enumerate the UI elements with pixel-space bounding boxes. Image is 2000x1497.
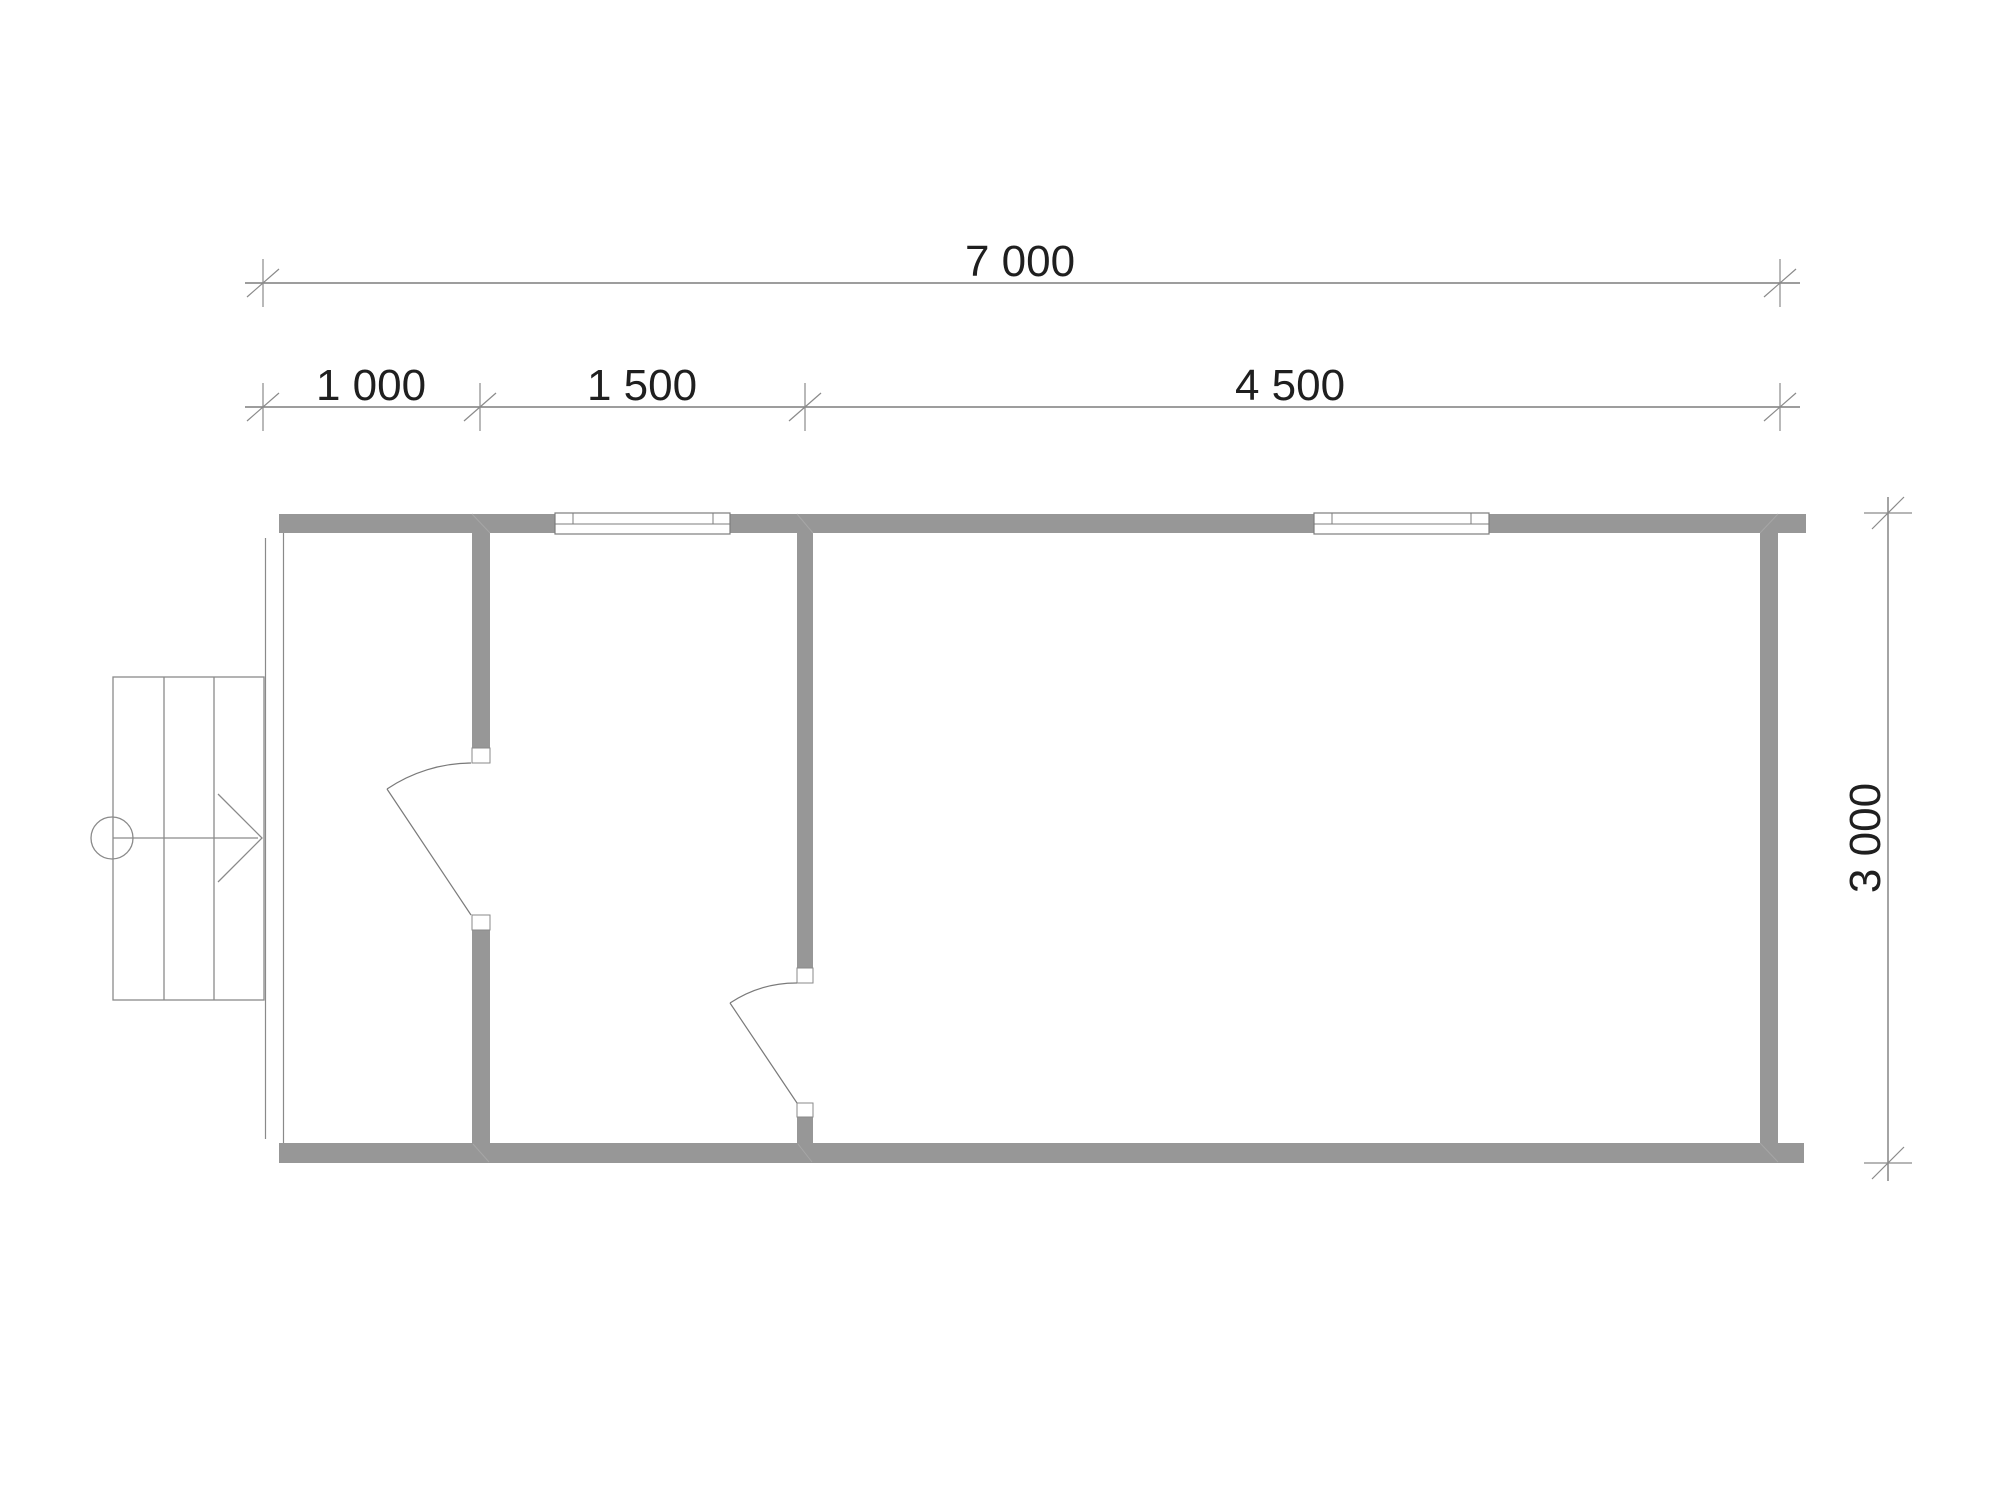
door-jamb [472,748,490,763]
dimension-total-width: 7 000 [245,237,1800,307]
door-leaf [387,789,471,915]
dimension-label-segment-2: 1 500 [587,361,697,410]
floor-plan-canvas: 7 000 1 000 1 500 4 500 [0,0,2000,1497]
door-jamb [472,915,490,930]
door-jamb [797,968,813,983]
dimension-label-total-width: 7 000 [965,237,1075,286]
interior-wall-1-lower [472,930,490,1143]
right-exterior-wall [1760,533,1778,1143]
window-2 [1314,513,1489,534]
door-jamb [797,1103,813,1117]
floor-plan-drawing: 7 000 1 000 1 500 4 500 [0,0,2000,1497]
dimension-segments: 1 000 1 500 4 500 [245,361,1800,431]
bottom-exterior-wall [279,1143,1804,1163]
door-swing-1 [387,763,471,915]
window-1 [555,513,730,534]
dimension-label-segment-3: 4 500 [1235,361,1345,410]
interior-wall-2-lower [797,1117,813,1143]
interior-wall-1 [472,514,490,1162]
stair-direction-arrow [91,794,262,882]
interior-wall-2 [797,514,813,1162]
top-exterior-wall [279,514,1806,533]
dimension-label-height: 3 000 [1841,783,1890,893]
door-swing-arc [730,983,797,1003]
exterior-walls [266,514,1807,1163]
door-swing-2 [730,983,797,1103]
interior-wall-2-upper [797,533,813,968]
staircase [91,677,264,1000]
door-swing-arc [387,763,471,789]
dimension-label-segment-1: 1 000 [316,361,426,410]
door-leaf [730,1003,797,1103]
dimension-height: 3 000 [1841,497,1912,1181]
interior-wall-1-upper [472,533,490,748]
